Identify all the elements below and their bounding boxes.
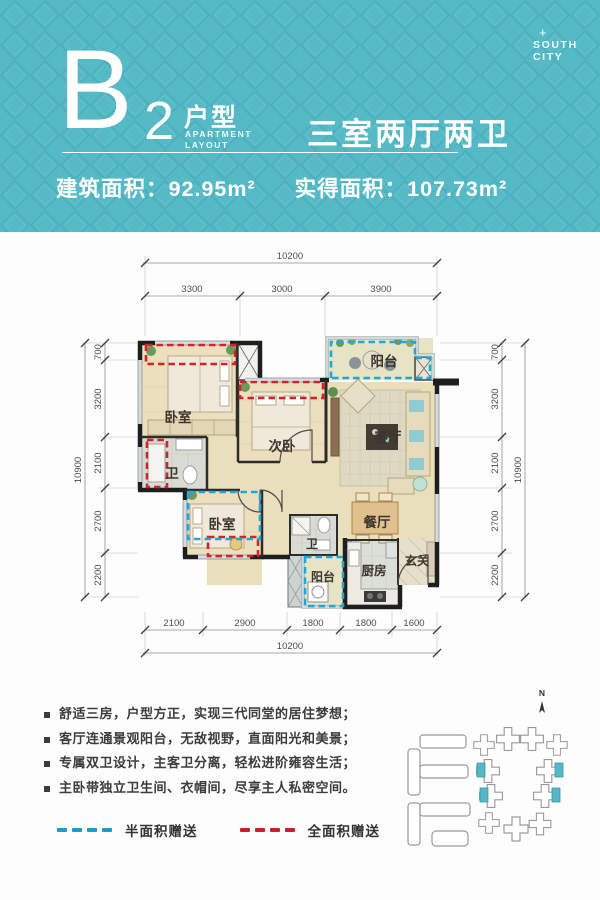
blue-dashed-line-icon: [57, 828, 117, 832]
plan-code-letter: B: [58, 34, 131, 146]
bullet-square-icon: [44, 737, 50, 743]
dim-right-seg4: 2700: [490, 510, 501, 531]
label-entry: 玄关: [405, 553, 429, 568]
label-dining-room: 餐厅: [363, 514, 391, 530]
built-area-value: 92.95m²: [169, 177, 256, 201]
dim-right-seg5: 2200: [490, 564, 501, 585]
feature-item: 专属双卫设计，主客卫分离，轻松进阶雍容生活；: [44, 755, 374, 772]
legend-half-area: 半面积赠送: [57, 820, 198, 840]
gift-area-legend: 半面积赠送 全面积赠送: [57, 820, 380, 840]
label-balcony-top: 阳台: [371, 353, 398, 369]
armchair: [413, 477, 427, 491]
label-bedroom-master: 卧室: [165, 409, 192, 425]
plan-code-number: 2: [144, 94, 174, 148]
compass-n-label: N: [539, 688, 545, 698]
logo-line2: CITY: [533, 51, 578, 63]
dim-bottom-seg2: 2900: [234, 618, 255, 629]
label-balcony-bottom: 阳台: [311, 569, 335, 584]
dim-left-seg2: 3200: [93, 388, 104, 409]
plant-icon: [146, 346, 156, 356]
washer-icon: [308, 582, 328, 602]
patio-chair: [349, 357, 361, 369]
built-area-label: 建筑面积：: [56, 177, 169, 201]
dim-top-seg2: 3000: [271, 284, 292, 295]
legend-half-label: 半面积赠送: [125, 820, 198, 840]
toilet-icon: [318, 517, 330, 533]
floorplan-section: 卧室 次卧 阳台 客厅 卫 卧室 卫 餐厅 玄关 厨房 阳台: [0, 232, 600, 690]
feature-item: 主卧带独立卫生间、衣帽间，尽享主人私密空间。: [44, 780, 374, 797]
label-bedroom-third: 卧室: [209, 516, 236, 532]
feature-text-1: 舒适三房，户型方正，实现三代同堂的居住梦想；: [59, 706, 356, 723]
dim-left-seg4: 2700: [93, 510, 104, 531]
header-divider-line: [62, 152, 458, 153]
tv-console: [331, 398, 339, 456]
compass-arrow-icon: [539, 701, 545, 713]
feature-list: 舒适三房，户型方正，实现三代同堂的居住梦想； 客厅连通景观阳台，无敌视野，直面阳…: [44, 706, 374, 805]
floorplan-drawing: 卧室 次卧 阳台 客厅 卫 卧室 卫 餐厅 玄关 厨房 阳台: [0, 232, 600, 690]
plant-icon: [240, 382, 250, 392]
dim-right-seg1: 700: [490, 344, 501, 360]
dim-right-seg2: 3200: [490, 388, 501, 409]
siteplan-map: N: [392, 683, 592, 858]
dim-bottom-total: 10200: [277, 641, 303, 652]
dim-left-total: 10900: [73, 457, 84, 483]
red-dashed-line-icon: [240, 828, 300, 832]
label-living-room: 客厅: [374, 429, 402, 445]
dim-bottom-seg1: 2100: [163, 618, 184, 629]
plan-type-en-line2: LAYOUT: [185, 140, 252, 151]
south-city-logo: + SOUTH CITY: [533, 26, 578, 63]
dim-top-total: 10200: [277, 251, 303, 262]
feature-text-4: 主卧带独立卫生间、衣帽间，尽享主人私密空间。: [59, 780, 356, 797]
dim-top-seg3: 3900: [370, 284, 391, 295]
rooms-summary: 三室两厅两卫: [307, 109, 511, 154]
label-kitchen: 厨房: [361, 563, 386, 578]
dim-left-seg1: 700: [93, 344, 104, 360]
flyer-page: B 2 户型 APARTMENT LAYOUT 三室两厅两卫 建筑面积：92.9…: [0, 0, 600, 900]
built-area: 建筑面积：92.95m²: [56, 172, 256, 203]
dim-right-total: 10900: [513, 457, 524, 483]
fridge: [386, 542, 398, 558]
area-info-row: 建筑面积：92.95m² 实得面积：107.73m²: [56, 172, 556, 203]
logo-line1: SOUTH: [533, 39, 578, 51]
dim-left-seg5: 2200: [93, 564, 104, 585]
actual-area-value: 107.73m²: [407, 177, 507, 201]
legend-full-area: 全面积赠送: [240, 820, 381, 840]
actual-area-label: 实得面积：: [295, 177, 408, 201]
bullet-square-icon: [44, 761, 50, 767]
feature-text-3: 专属双卫设计，主客卫分离，轻松进阶雍容生活；: [59, 755, 356, 772]
feature-text-2: 客厅连通景观阳台，无敌视野，直面阳光和美景；: [59, 731, 356, 748]
dim-top-seg1: 3300: [181, 284, 202, 295]
vanity: [176, 439, 202, 450]
feature-item: 舒适三房，户型方正，实现三代同堂的居住梦想；: [44, 706, 374, 723]
header-banner: B 2 户型 APARTMENT LAYOUT 三室两厅两卫 建筑面积：92.9…: [0, 0, 600, 232]
dim-bottom-seg3: 1800: [302, 618, 323, 629]
actual-area: 实得面积：107.73m²: [295, 172, 508, 203]
label-bedroom-second: 次卧: [269, 438, 296, 454]
compass-north: N: [539, 688, 545, 713]
dim-bottom-seg5: 1600: [403, 618, 424, 629]
toilet-icon: [183, 466, 197, 484]
legend-full-label: 全面积赠送: [308, 820, 381, 840]
feature-item: 客厅连通景观阳台，无敌视野，直面阳光和美景；: [44, 731, 374, 748]
plan-type-english: APARTMENT LAYOUT: [185, 129, 252, 150]
dim-left-seg3: 2100: [93, 452, 104, 473]
dim-right-seg3: 2100: [490, 452, 501, 473]
dim-bottom-seg4: 1800: [355, 618, 376, 629]
plan-type-en-line1: APARTMENT: [185, 129, 252, 140]
shower: [148, 444, 165, 482]
label-bath-left: 卫: [165, 466, 179, 481]
bullet-square-icon: [44, 712, 50, 718]
plant-icon: [328, 387, 338, 397]
label-bath-middle: 卫: [306, 537, 318, 551]
logo-plus-icon: +: [539, 26, 578, 39]
bullet-square-icon: [44, 786, 50, 792]
site-buildings-outline: [408, 728, 567, 846]
